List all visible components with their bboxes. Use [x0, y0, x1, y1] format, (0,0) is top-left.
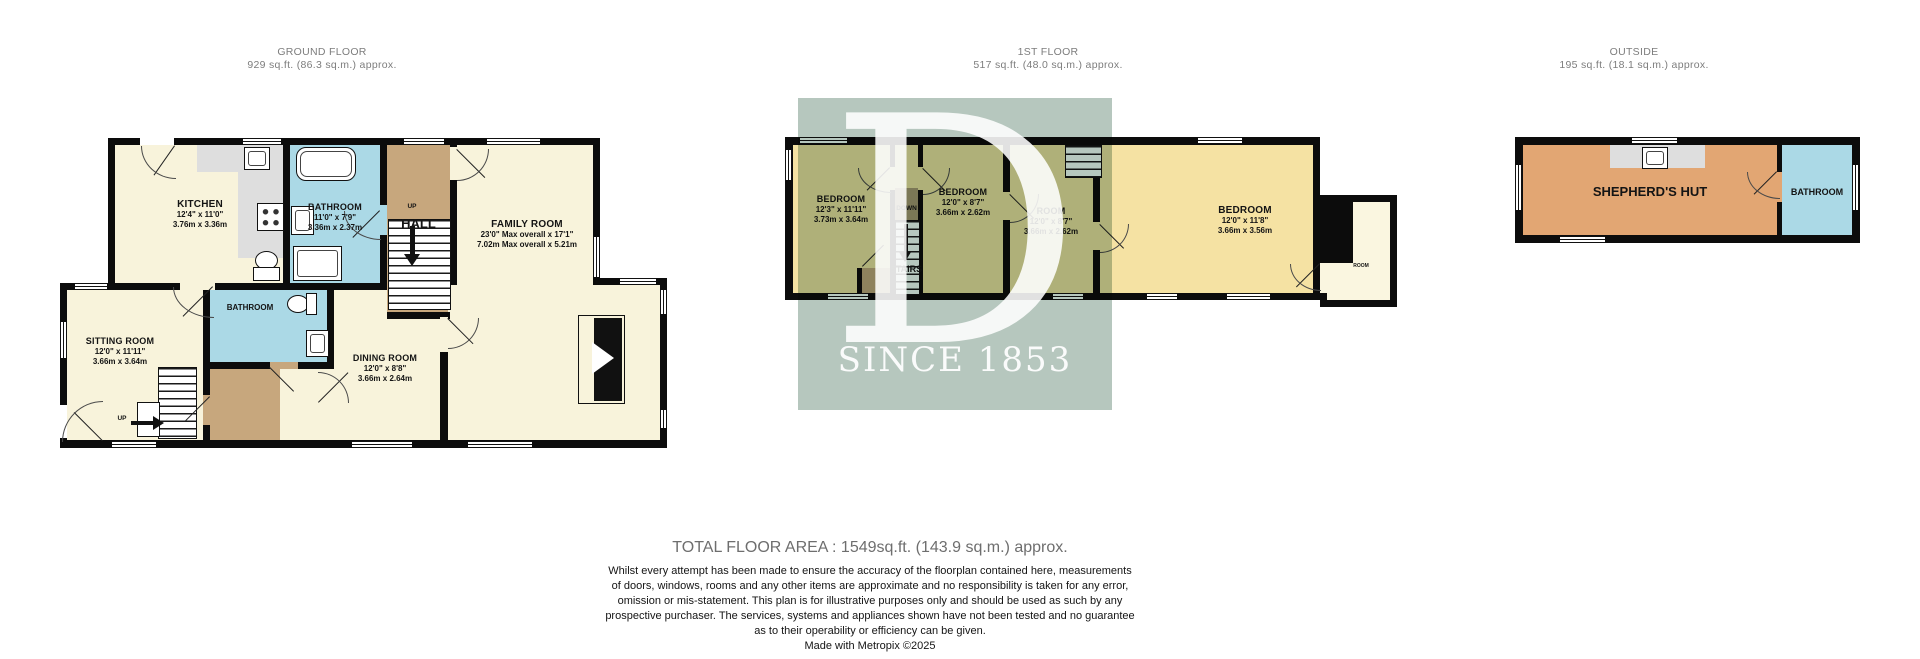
door-opening [380, 205, 387, 235]
outside-bathroom-label: BATHROOM [1782, 187, 1852, 197]
room-dims-ft: 12'4" x 11'0" [140, 210, 260, 220]
window [1560, 236, 1605, 243]
fireplace-icon [578, 315, 625, 404]
metropix-credit: Made with Metropix ©2025 [370, 639, 1370, 654]
door-opening [140, 138, 174, 145]
room-name: FAMILY ROOM [457, 219, 597, 230]
room-dims-m: 3.66m x 3.64m [60, 357, 180, 367]
watermark-caption: SINCE 1853 [798, 343, 1112, 377]
room-name: BEDROOM [1185, 205, 1305, 216]
vanity-sink-icon [293, 246, 342, 281]
room-dims-m: 7.02m Max overall x 5.21m [457, 240, 597, 250]
window [1147, 293, 1177, 300]
ground-floor-area-text: 929 sq.ft. (86.3 sq.m.) approx. [222, 59, 422, 72]
up-arrow-head [153, 416, 164, 430]
window [660, 290, 667, 314]
hall-label: HALL [387, 216, 450, 231]
up-label: UP [400, 203, 424, 210]
room-dims-m: 3.36m x 2.37m [290, 223, 380, 233]
door-opening [1320, 263, 1327, 293]
family-room-label: FAMILY ROOM 23'0" Max overall x 17'1" 7.… [457, 219, 597, 249]
stove-icon [257, 203, 284, 231]
window [620, 278, 656, 285]
window [468, 441, 532, 448]
fireplace-wedge [592, 342, 614, 374]
window [112, 441, 156, 448]
window [243, 138, 281, 145]
window [1852, 165, 1859, 210]
small-room [1353, 202, 1390, 300]
room-dims-m: 3.66m x 3.56m [1185, 226, 1305, 236]
bathroom2-label: BATHROOM [212, 303, 288, 312]
toilet-tank-icon [253, 267, 280, 281]
door-opening [440, 317, 448, 352]
disclaimer-line: prospective purchaser. The services, sys… [370, 609, 1370, 624]
hallway-room [210, 369, 280, 440]
room-dims-ft: 23'0" Max overall x 17'1" [457, 230, 597, 240]
outside-title: OUTSIDE 195 sq.ft. (18.1 sq.m.) approx. [1534, 46, 1734, 72]
room-dims-ft: 12'0" x 11'11" [60, 347, 180, 357]
outside-area-text: 195 sq.ft. (18.1 sq.m.) approx. [1534, 59, 1734, 72]
dining-room-label: DINING ROOM 12'0" x 8'8" 3.66m x 2.64m [330, 353, 440, 383]
family-room [448, 285, 660, 440]
bedroom3-label: BEDROOM 12'0" x 11'8" 3.66m x 3.56m [1185, 205, 1305, 235]
room-dims-ft: 11'0" x 7'9" [290, 213, 380, 223]
room-dims-m: 3.76m x 3.36m [140, 220, 260, 230]
sink-icon [1642, 147, 1668, 169]
window [1227, 293, 1270, 300]
window [352, 441, 412, 448]
window [1198, 137, 1242, 144]
sitting-room-label: SITTING ROOM 12'0" x 11'11" 3.66m x 3.64… [60, 336, 180, 366]
shepherds-hut-label: SHEPHERD'S HUT [1590, 184, 1710, 199]
window [1515, 165, 1522, 210]
room-name: DINING ROOM [330, 353, 440, 364]
door-opening [270, 362, 298, 369]
toilet-tank-icon [306, 293, 317, 315]
window [1632, 137, 1677, 144]
disclaimer-line: Whilst every attempt has been made to en… [370, 564, 1370, 579]
room-name: SITTING ROOM [60, 336, 180, 347]
window [487, 138, 540, 145]
total-floor-area: TOTAL FLOOR AREA : 1549sq.ft. (143.9 sq.… [370, 539, 1370, 557]
window [785, 150, 792, 180]
watermark-letter: D [798, 84, 1112, 384]
ground-floor-title-text: GROUND FLOOR [222, 46, 422, 59]
sink-icon [306, 330, 329, 357]
kitchen-counter [197, 145, 283, 172]
up-label: UP [112, 415, 132, 422]
bathroom-label: BATHROOM 11'0" x 7'9" 3.36m x 2.37m [290, 202, 380, 232]
bathtub-icon [296, 147, 356, 181]
room-dims-ft: 12'0" x 8'8" [330, 364, 440, 374]
small-room-label: ROOM [1348, 263, 1374, 269]
outside-title-text: OUTSIDE [1534, 46, 1734, 59]
window [404, 138, 444, 145]
floorplan-canvas: GROUND FLOOR 929 sq.ft. (86.3 sq.m.) app… [0, 0, 1920, 659]
room-name: KITCHEN [140, 199, 260, 210]
disclaimer-line: omission or mis-statement. This plan is … [370, 594, 1370, 609]
window [75, 283, 107, 290]
room-dims-ft: 12'0" x 11'8" [1185, 216, 1305, 226]
window [660, 410, 667, 428]
kitchen-sink-icon [244, 147, 270, 170]
footer: TOTAL FLOOR AREA : 1549sq.ft. (143.9 sq.… [370, 539, 1370, 654]
disclaimer-line: as to their operability or efficiency ca… [370, 624, 1370, 639]
door-opening [450, 147, 457, 180]
kitchen-label: KITCHEN 12'4" x 11'0" 3.76m x 3.36m [140, 199, 260, 229]
disclaimer-line: of doors, windows, rooms and any other i… [370, 579, 1370, 594]
up-arrow [131, 421, 153, 425]
stairs-arrow-head [404, 254, 420, 266]
ground-floor-title: GROUND FLOOR 929 sq.ft. (86.3 sq.m.) app… [222, 46, 422, 72]
room-name: BATHROOM [290, 202, 380, 213]
room-dims-m: 3.66m x 2.64m [330, 374, 440, 384]
